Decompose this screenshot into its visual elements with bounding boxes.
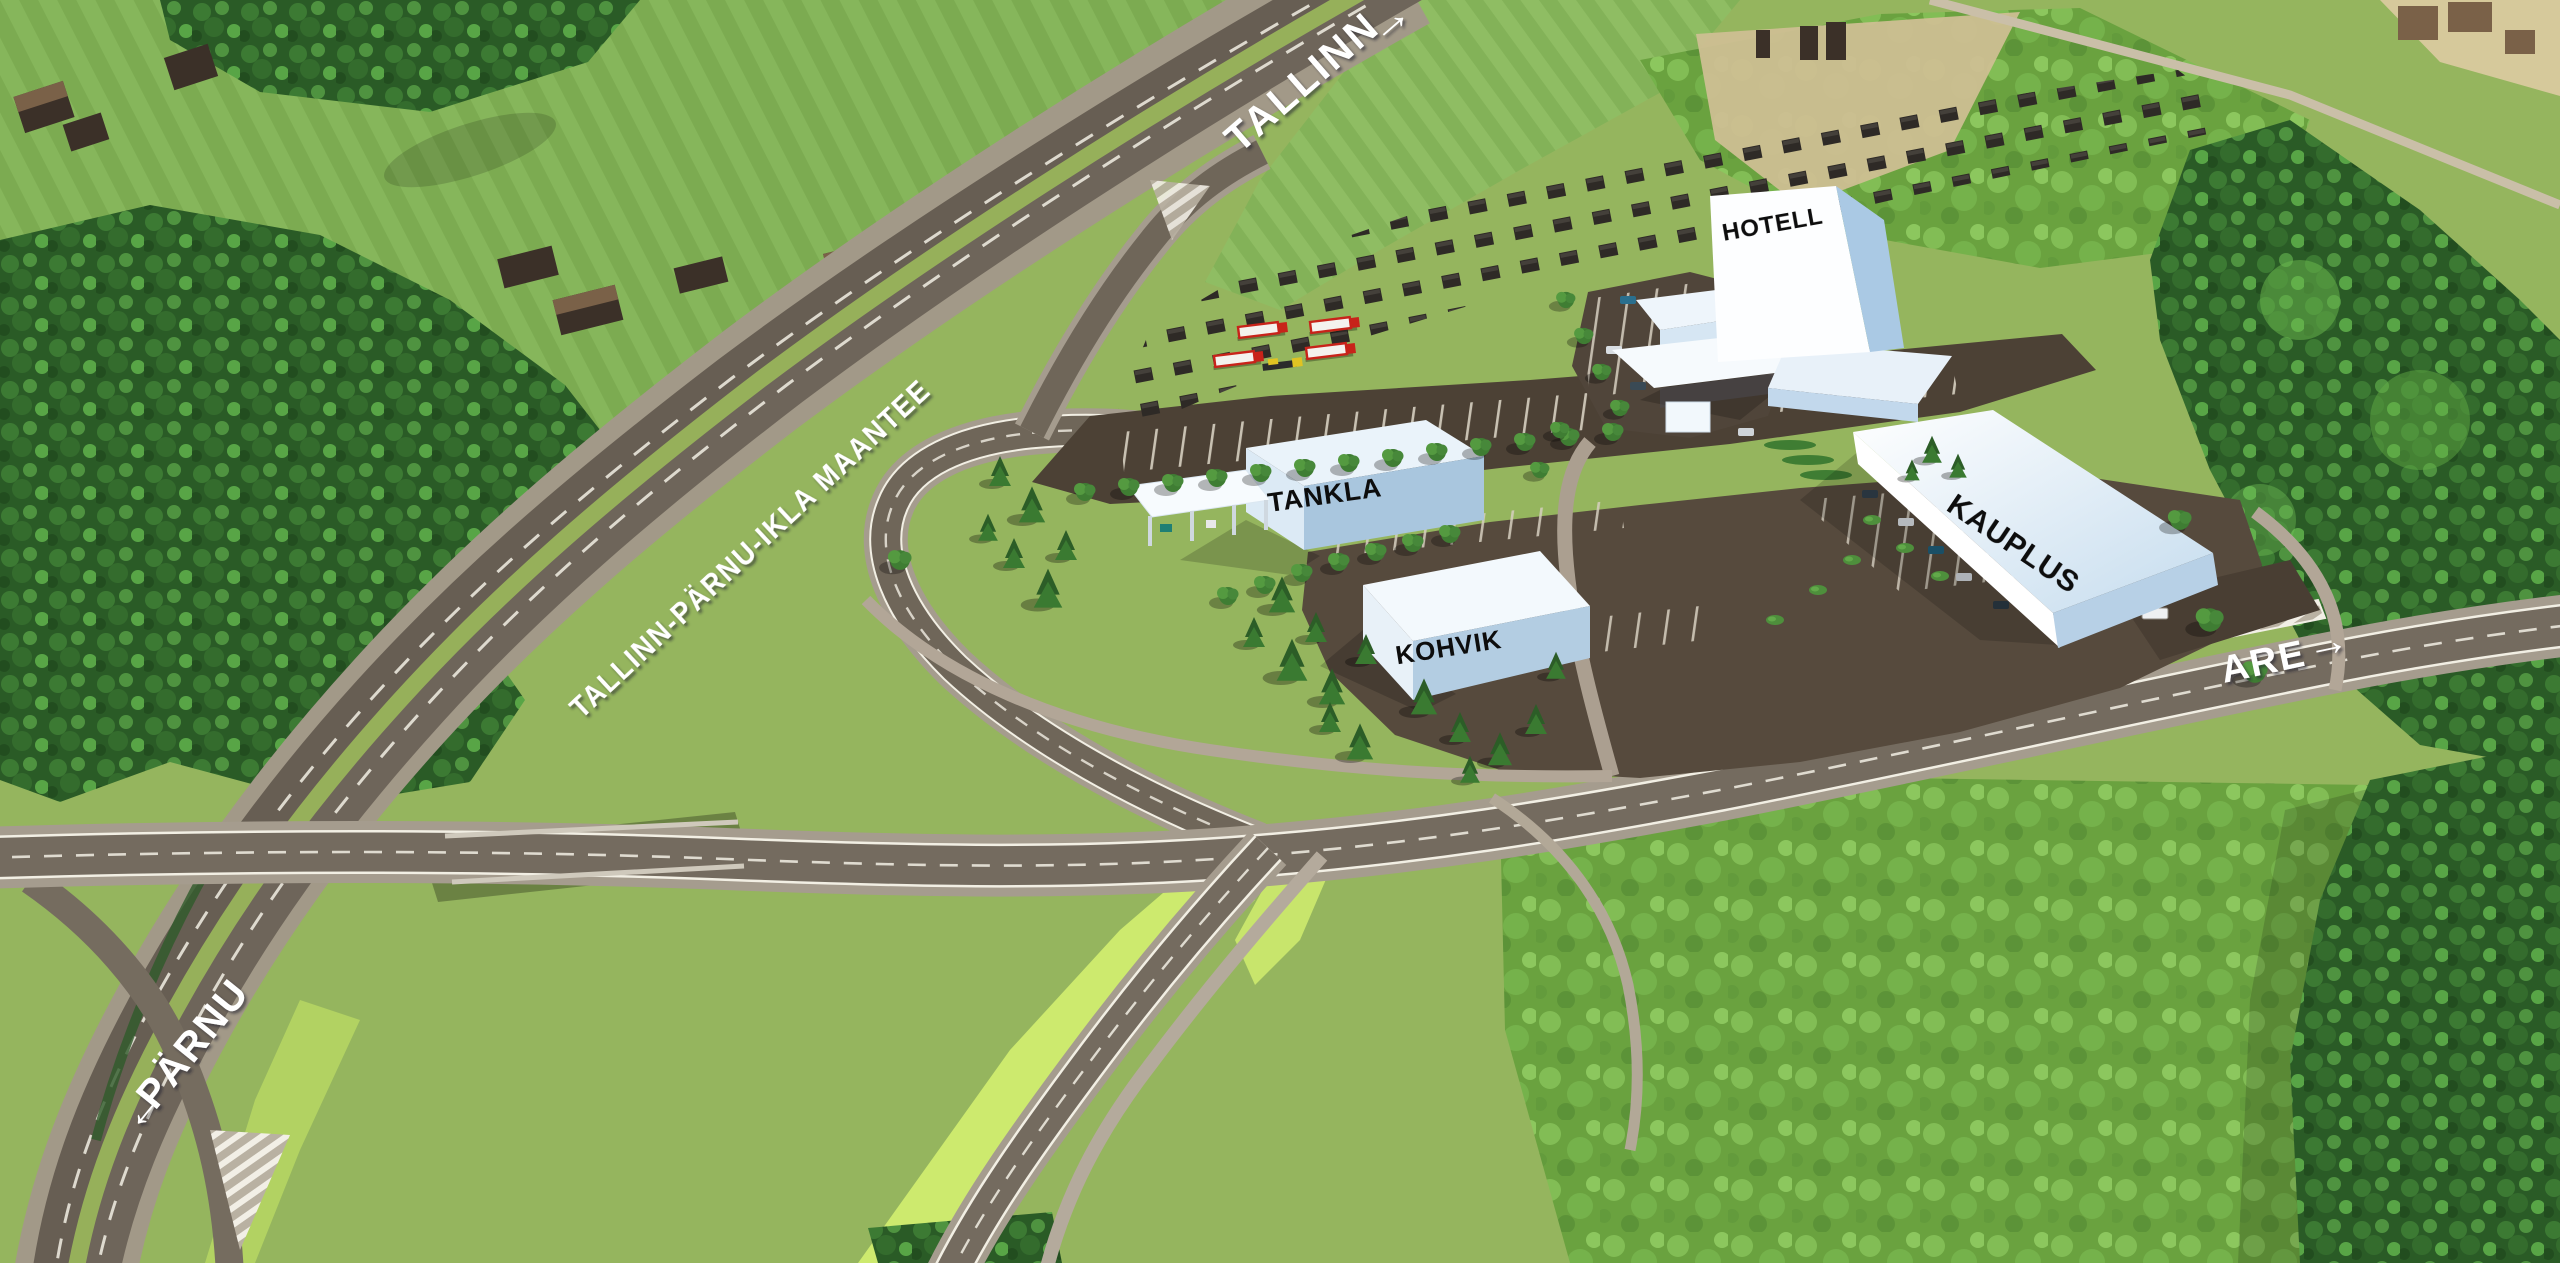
car bbox=[1630, 382, 1646, 390]
small-hut bbox=[1666, 402, 1710, 432]
car bbox=[1738, 428, 1754, 436]
scene-canvas: TALLINN → TALLINN-PÄRNU-IKLA MAANTEE PÄR… bbox=[0, 0, 2560, 1263]
fuel-pump bbox=[1206, 520, 1216, 528]
car-under-canopy bbox=[1160, 524, 1172, 532]
site-plan-rendering: TALLINN → TALLINN-PÄRNU-IKLA MAANTEE PÄR… bbox=[0, 0, 2560, 1263]
car bbox=[1620, 296, 1636, 304]
